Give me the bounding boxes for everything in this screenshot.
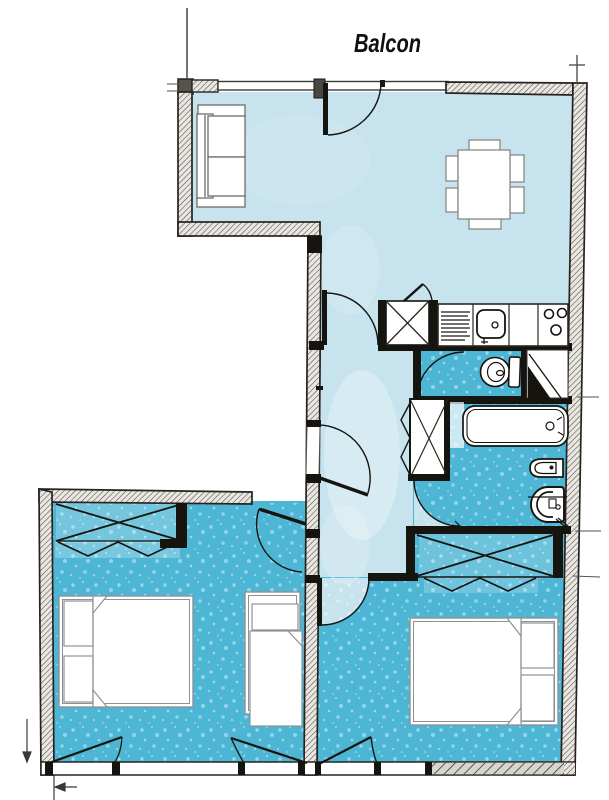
- svg-text:Balcon: Balcon: [354, 28, 421, 58]
